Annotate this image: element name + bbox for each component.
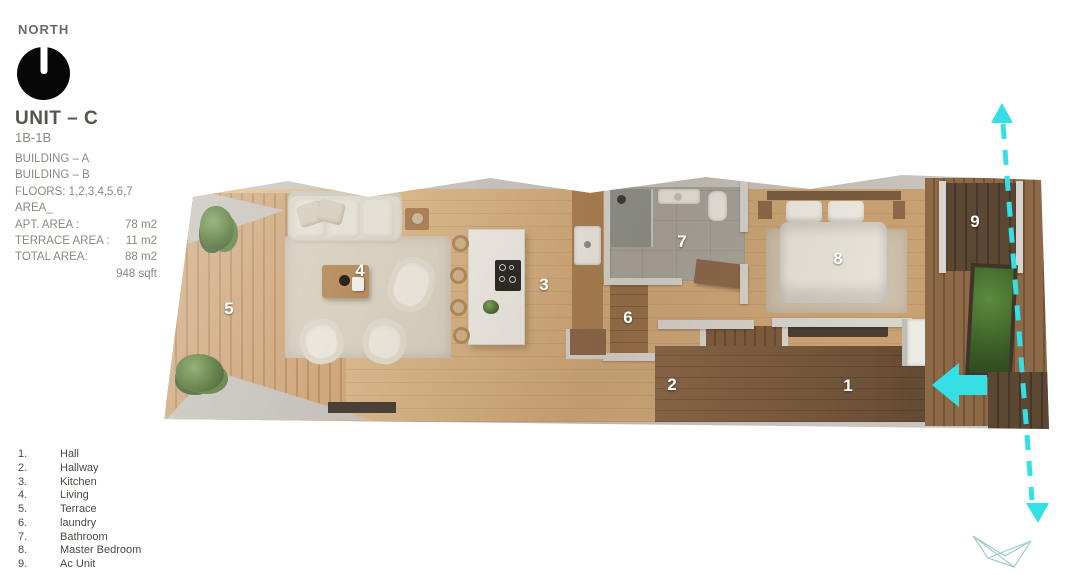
apt-area-row: APT. AREA : 78 m2 xyxy=(15,217,157,233)
floorplan-page: NORTH UNIT – C 1B-1B BUILDING – A BUILDI… xyxy=(0,0,1070,575)
unit-type: 1B-1B xyxy=(15,130,51,145)
north-label: NORTH xyxy=(18,22,69,37)
legend-label: Hallway xyxy=(60,462,99,476)
bedroom-hall-wall xyxy=(658,320,754,329)
legend-label: laundry xyxy=(60,517,96,531)
building-a-line: BUILDING – A xyxy=(15,151,133,167)
toilet xyxy=(708,191,727,221)
sqft-value: 948 sqft xyxy=(116,266,157,282)
legend-item-living: 4.Living xyxy=(18,489,141,503)
floor-plan: 1 2 3 4 5 6 7 8 9 xyxy=(160,168,1053,434)
legend-item-hallway: 2.Hallway xyxy=(18,462,141,476)
entry-walkway xyxy=(988,372,1063,434)
floors-line: FLOORS: 1,2,3,4,5,6,7 xyxy=(15,184,133,200)
apt-area-label: APT. AREA : xyxy=(15,217,79,233)
legend-num: 4. xyxy=(18,489,60,503)
room-number-ac-unit: 9 xyxy=(970,212,979,232)
island-plant xyxy=(483,300,499,314)
burner xyxy=(509,265,514,270)
bar-stool xyxy=(453,327,470,344)
burner xyxy=(509,276,516,283)
legend-num: 1. xyxy=(18,448,60,462)
ac-trim xyxy=(939,181,946,273)
room-number-hallway: 2 xyxy=(667,375,676,395)
sqft-row: 948 sqft xyxy=(15,266,157,282)
legend-num: 9. xyxy=(18,558,60,572)
ac-trim xyxy=(1016,181,1023,273)
area-heading: AREA_ xyxy=(15,200,133,216)
brand-logo xyxy=(973,536,1031,567)
bedroom-wall xyxy=(740,264,748,304)
terrace-area-row: TERRACE AREA : 11 m2 xyxy=(15,233,157,249)
legend-item-terrace: 5.Terrace xyxy=(18,503,141,517)
laundry-wall xyxy=(603,353,658,361)
nightstand xyxy=(758,201,772,219)
legend-label: Master Bedroom xyxy=(60,544,141,558)
area-table: APT. AREA : 78 m2 TERRACE AREA : 11 m2 T… xyxy=(15,217,157,282)
room-number-living: 4 xyxy=(355,261,364,281)
room-number-kitchen: 3 xyxy=(539,275,548,295)
sink-basin xyxy=(674,193,682,201)
room-number-bathroom: 7 xyxy=(677,232,686,252)
apt-area-value: 78 m2 xyxy=(125,217,157,233)
room-number-terrace: 5 xyxy=(224,299,233,319)
legend-num: 2. xyxy=(18,462,60,476)
legend-num: 3. xyxy=(18,476,60,490)
sofa-cushion xyxy=(363,200,394,238)
unit-title: UNIT – C xyxy=(15,108,98,130)
legend-item-master-bedroom: 8.Master Bedroom xyxy=(18,544,141,558)
bed-pillow xyxy=(828,201,864,222)
compass-notch xyxy=(40,47,47,74)
headboard xyxy=(767,191,901,200)
arrow-up-icon xyxy=(991,103,1013,123)
nightstand xyxy=(893,201,905,219)
room-legend: 1.Hall 2.Hallway 3.Kitchen 4.Living 5.Te… xyxy=(18,448,141,572)
room-number-hall: 1 xyxy=(843,376,852,396)
room-number-laundry: 6 xyxy=(623,308,632,328)
bathroom-wall-bottom xyxy=(604,278,682,285)
coffee-cup xyxy=(339,275,350,286)
bar-stool xyxy=(450,299,467,316)
north-compass-icon xyxy=(17,47,70,100)
bathroom-sink xyxy=(658,189,700,204)
legend-label: Ac Unit xyxy=(60,558,95,572)
bedroom-hall-wall xyxy=(772,318,912,327)
terrace-plant xyxy=(176,354,224,392)
terrace-plant xyxy=(200,206,234,250)
legend-label: Hall xyxy=(60,448,79,462)
table-lamp xyxy=(411,212,424,225)
legend-num: 6. xyxy=(18,517,60,531)
faucet xyxy=(584,241,591,248)
total-area-label: TOTAL AREA: xyxy=(15,249,88,265)
terrace-area-value: 11 m2 xyxy=(126,233,157,249)
legend-item-hall: 1.Hall xyxy=(18,448,141,462)
terrace-area-label: TERRACE AREA : xyxy=(15,233,110,249)
shower-head xyxy=(617,195,626,204)
arrow-down-icon xyxy=(1026,503,1049,523)
total-area-value: 88 m2 xyxy=(125,249,157,265)
legend-num: 7. xyxy=(18,531,60,545)
doormat xyxy=(328,402,396,413)
ac-unit-pad xyxy=(945,183,1017,271)
legend-label: Bathroom xyxy=(60,531,108,545)
legend-item-kitchen: 3.Kitchen xyxy=(18,476,141,490)
legend-item-ac-unit: 9.Ac Unit xyxy=(18,558,141,572)
bedroom-wall xyxy=(740,180,748,232)
bar-stool xyxy=(452,235,469,252)
legend-label: Living xyxy=(60,489,89,503)
sofa xyxy=(288,191,402,243)
bar-stool xyxy=(450,267,467,284)
unit-details: BUILDING – A BUILDING – B FLOORS: 1,2,3,… xyxy=(15,151,133,216)
room-number-master-bedroom: 8 xyxy=(833,249,842,269)
burner xyxy=(499,264,506,271)
legend-label: Terrace xyxy=(60,503,97,517)
kitchen-island xyxy=(468,229,525,345)
legend-num: 8. xyxy=(18,544,60,558)
building-b-line: BUILDING – B xyxy=(15,167,133,183)
cooktop xyxy=(495,260,521,291)
bathroom-wall-left xyxy=(604,187,610,283)
legend-num: 5. xyxy=(18,503,60,517)
planter-box xyxy=(965,263,1018,378)
burner xyxy=(499,276,505,282)
bed-pillow xyxy=(786,201,822,222)
shower xyxy=(611,189,653,247)
legend-item-laundry: 6.laundry xyxy=(18,517,141,531)
wardrobe xyxy=(566,329,606,359)
kitchen-sink xyxy=(574,226,601,265)
legend-item-bathroom: 7.Bathroom xyxy=(18,531,141,545)
total-area-row: TOTAL AREA: 88 m2 xyxy=(15,249,157,265)
legend-label: Kitchen xyxy=(60,476,97,490)
side-table xyxy=(405,208,429,230)
